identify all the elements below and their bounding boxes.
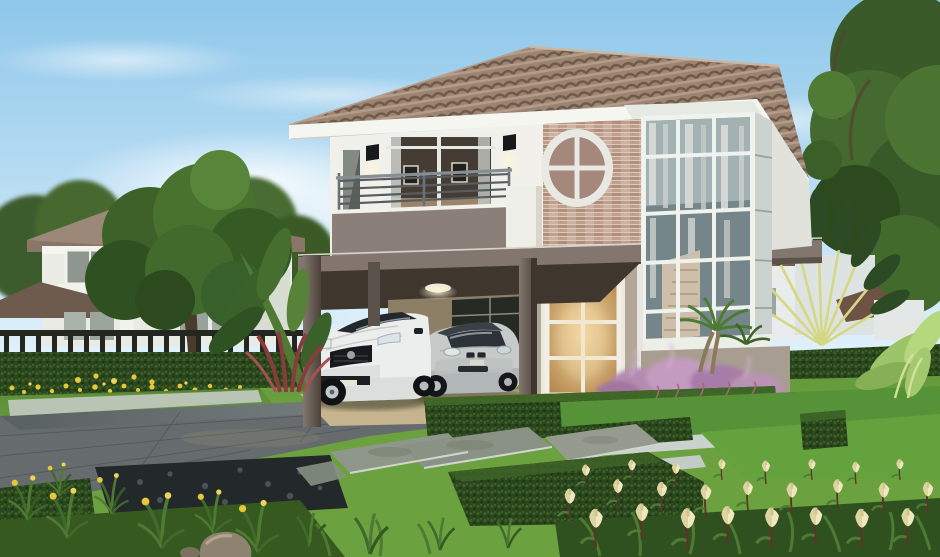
- stair-bay: [641, 112, 772, 352]
- rendered-scene: [0, 0, 940, 557]
- oval-window: [541, 129, 613, 207]
- stair-bay-side: [755, 112, 772, 339]
- sedan-car: [420, 322, 521, 397]
